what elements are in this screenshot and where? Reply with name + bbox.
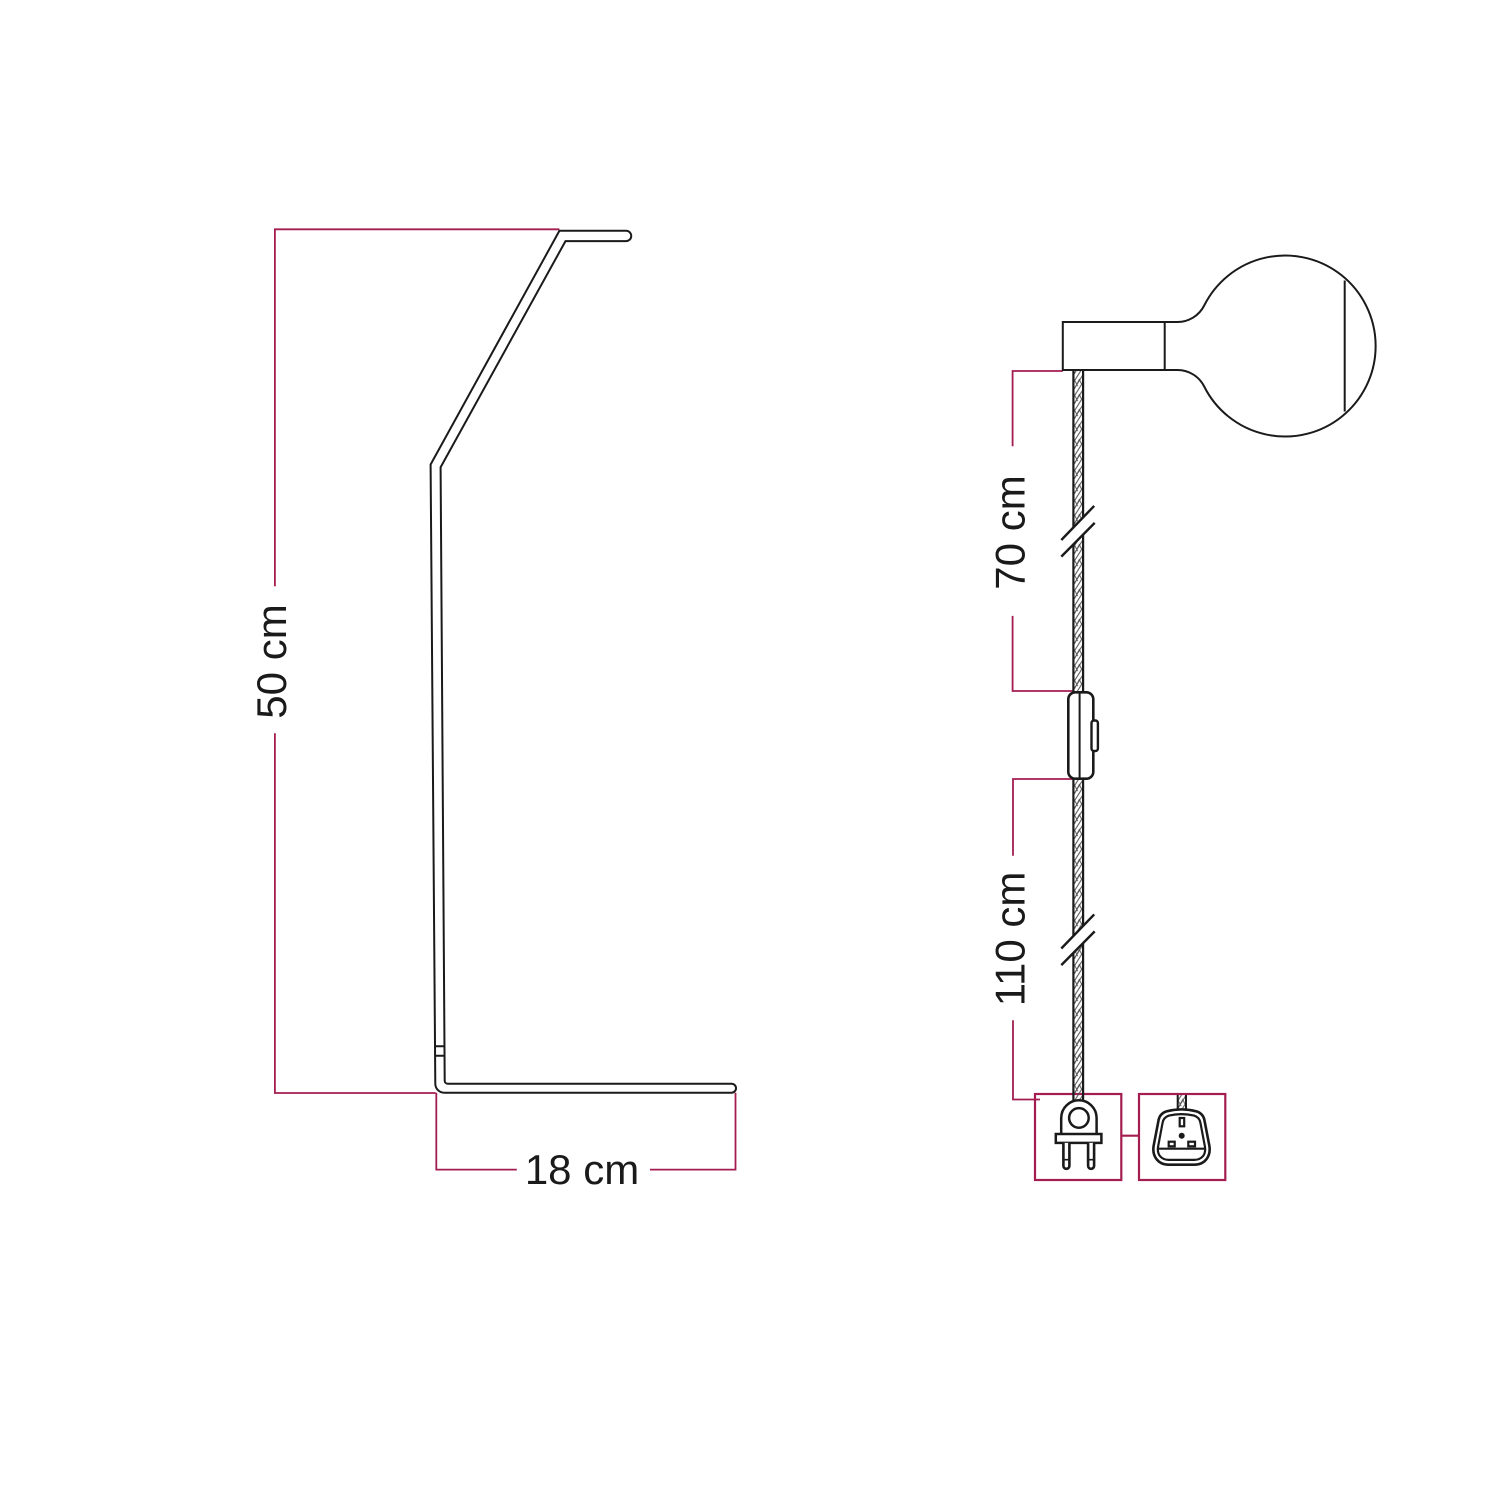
svg-text:50 cm: 50 cm bbox=[248, 604, 295, 718]
svg-text:18 cm: 18 cm bbox=[525, 1146, 639, 1193]
svg-text:110 cm: 110 cm bbox=[987, 872, 1034, 1007]
svg-text:70 cm: 70 cm bbox=[987, 475, 1034, 589]
